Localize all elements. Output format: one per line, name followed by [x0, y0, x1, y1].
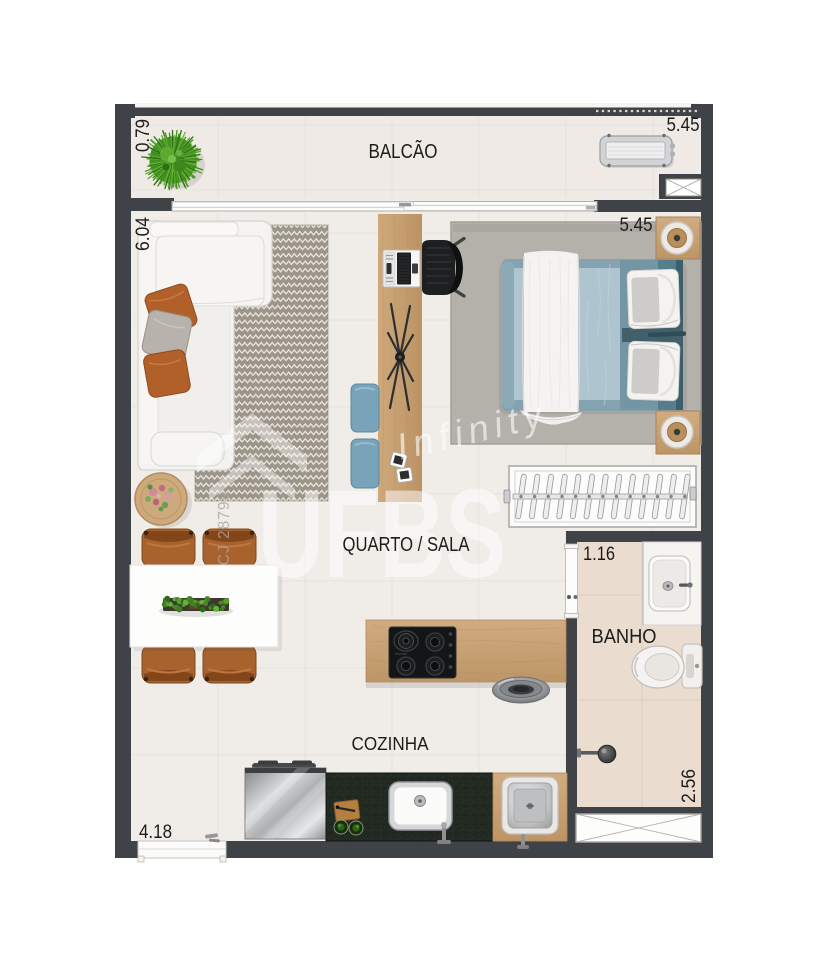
svg-text:6.04: 6.04: [132, 217, 154, 251]
svg-text:COZINHA: COZINHA: [352, 733, 430, 754]
svg-text:QUARTO / SALA: QUARTO / SALA: [343, 534, 471, 556]
svg-text:BANHO: BANHO: [592, 626, 657, 648]
svg-text:4.18: 4.18: [139, 821, 172, 843]
svg-text:5.45: 5.45: [620, 214, 653, 236]
svg-text:2.56: 2.56: [678, 769, 700, 803]
svg-text:BALCÃO: BALCÃO: [369, 139, 438, 163]
svg-text:CJ 28799: CJ 28799: [216, 491, 233, 565]
svg-text:5.45: 5.45: [667, 114, 700, 136]
svg-text:0.79: 0.79: [132, 119, 154, 152]
svg-text:1.16: 1.16: [583, 543, 615, 565]
